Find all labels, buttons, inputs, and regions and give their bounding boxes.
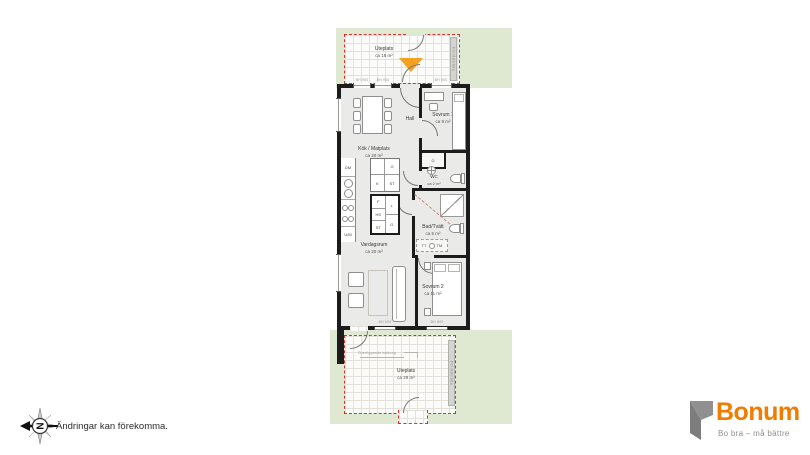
hall-label: Hall — [398, 116, 422, 123]
wall-wc-south — [412, 188, 470, 191]
terrace-top-name: Uteplats — [364, 46, 404, 53]
bath-name: Bad/Tvätt — [418, 224, 448, 231]
terrace-bottom-storage-strip: Förrådslåda — [448, 340, 455, 406]
wall-stub-southwest — [337, 330, 344, 364]
armchair — [348, 272, 364, 287]
living-label: Vardagsrum ca 20 m² — [350, 242, 398, 256]
terrace-bottom-area: ca 29 m² — [386, 375, 426, 382]
terrace-top-area: ca 18 m² — [364, 53, 404, 60]
bonum-logo-icon — [687, 400, 714, 442]
dining-chair — [353, 98, 361, 108]
disclaimer-text: Ändringar kan förekomma. — [56, 421, 168, 432]
desk-chair — [429, 103, 438, 111]
cabinet-cell — [371, 159, 385, 175]
dining-chair — [384, 98, 392, 108]
linen-closet-cell: L — [386, 196, 399, 215]
terrace-top-side-label: Förrådslåda — [451, 38, 456, 80]
tall-cabinet-cell: HS — [372, 209, 385, 222]
sofa — [392, 266, 406, 322]
bedroom2-label: Sovrum 2 ca 11 m² — [416, 284, 450, 298]
dining-chair — [353, 124, 361, 134]
balcony-outline-line — [360, 357, 404, 358]
terrace-bottom-label: Uteplats ca 29 m² — [386, 368, 426, 382]
cleaning-closet-cell: ST — [372, 221, 385, 233]
kitchen-window-2 — [374, 83, 392, 88]
wall-bath-west-lower — [412, 216, 415, 255]
living-side-window — [336, 254, 341, 292]
sill-mark: BH 900 — [429, 78, 453, 82]
oven-micro: U/M — [341, 227, 355, 242]
burner-icon — [348, 205, 354, 211]
bedroom1-window — [431, 83, 452, 88]
floor-plan-page: Förrådslåda Uteplats ca 18 m² BH 900 BH … — [0, 0, 810, 455]
closet-label: G — [422, 153, 444, 167]
terrace-bottom-side-label: Förrådslåda — [449, 341, 454, 405]
living-area: ca 20 m² — [350, 249, 398, 256]
dining-chair — [353, 111, 361, 121]
wc-label: WC ca 2 m² — [422, 174, 446, 186]
kitchen-side-window — [336, 98, 341, 132]
kitchen-area: ca 20 m² — [352, 153, 396, 160]
washer-label: TM — [437, 243, 443, 248]
pillow — [454, 94, 464, 102]
living-name: Vardagsrum — [350, 242, 398, 249]
bath-toilet — [449, 224, 460, 233]
bath-label: Bad/Tvätt ca 5 m² — [418, 224, 448, 238]
terrace-top-storage-strip: Förrådslåda — [450, 37, 457, 81]
sink-bowl-icon — [344, 189, 353, 198]
freezer-cell: F — [372, 196, 385, 209]
shower — [440, 194, 464, 217]
storage-block: F HS ST L G — [370, 194, 400, 235]
wardrobe-cell: G — [386, 215, 399, 233]
cabinet-cell: G — [385, 159, 399, 175]
kitchen-cabinet-block: G K ST — [370, 158, 400, 192]
bedside-table — [424, 262, 431, 270]
kitchen-window-1 — [353, 83, 371, 88]
wc-toilet-tank — [461, 173, 465, 184]
wall-bedroom1-west-lower — [419, 138, 422, 150]
wall-bedroom1-west-upper — [419, 88, 422, 118]
wc-toilet — [450, 174, 461, 183]
dining-table — [362, 96, 383, 134]
dining-chair — [384, 111, 392, 121]
burner-icon — [348, 216, 354, 222]
bedroom2-name: Sovrum 2 — [416, 284, 450, 291]
pillow — [448, 264, 460, 272]
rug — [368, 270, 388, 316]
cleaning-closet-cell: ST — [385, 175, 399, 191]
bedroom2-area: ca 11 m² — [416, 291, 450, 298]
kitchen-sink — [341, 177, 355, 200]
sofa-back-line — [396, 269, 397, 319]
dishwasher: DM — [341, 158, 355, 177]
kitchen-counter: DM U/M — [341, 158, 356, 242]
storage-right-column: L G — [386, 196, 399, 233]
kitchen-name: Kök / Matplats — [352, 146, 396, 153]
floor-drain-icon — [429, 243, 435, 249]
sill-mark: BH 600 — [425, 320, 449, 324]
terrace-bottom-name: Uteplats — [386, 368, 426, 375]
bedside-table — [424, 308, 431, 316]
dryer-label: TT — [422, 243, 427, 248]
balcony-outline-corner — [404, 352, 418, 358]
storage-left-column: F HS ST — [372, 196, 386, 233]
north-arrow-head-icon — [20, 421, 30, 431]
wc-area: ca 2 m² — [422, 181, 446, 187]
sill-mark: BH 900 — [371, 78, 395, 82]
brand-tagline: Bo bra – må bättre — [718, 429, 790, 438]
armchair — [348, 293, 364, 308]
dining-chair — [384, 124, 392, 134]
terrace-top-label: Uteplats ca 18 m² — [364, 46, 404, 60]
fridge-cell: K — [371, 175, 385, 191]
bath-toilet-tank — [460, 223, 464, 234]
bath-area: ca 5 m² — [418, 231, 448, 238]
desk — [424, 92, 444, 101]
laundry-appliances: TT TM — [416, 239, 448, 252]
brand-name: Bonum — [716, 398, 800, 427]
kitchen-label: Kök / Matplats ca 20 m² — [352, 146, 396, 160]
compass-north-letter: N — [36, 422, 47, 429]
pillow — [434, 264, 446, 272]
stove — [341, 200, 355, 227]
sink-bowl-icon — [344, 179, 353, 188]
